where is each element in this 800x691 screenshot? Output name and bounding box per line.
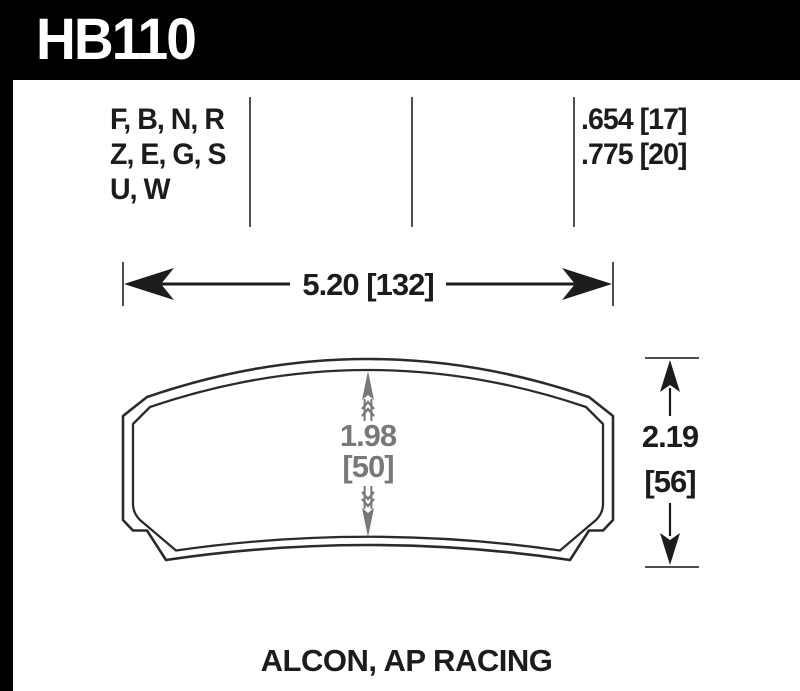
width-dimension: 5.20 [132] (123, 262, 613, 306)
width-dim-label: 5.20 [132] (302, 267, 433, 302)
pad-diagram: 5.20 [132] 1.98 [50] 2.19 [56] (0, 0, 800, 691)
center-dim-label-inches: 1.98 (340, 418, 397, 453)
center-dim-arrow-up-icon (362, 371, 374, 400)
center-dim-label-mm: [50] (342, 449, 393, 484)
height-dim-label-inches: 2.19 (642, 419, 699, 454)
height-dim-arrow-down-icon (660, 533, 680, 565)
height-dim-arrow-up-icon (660, 360, 680, 392)
center-dim-arrow-down-icon (362, 508, 374, 537)
center-depth-dimension: 1.98 [50] (340, 371, 397, 537)
height-dimension: 2.19 [56] (642, 358, 699, 567)
applications-label: ALCON, AP RACING (13, 643, 800, 679)
height-dim-label-mm: [56] (644, 464, 695, 499)
